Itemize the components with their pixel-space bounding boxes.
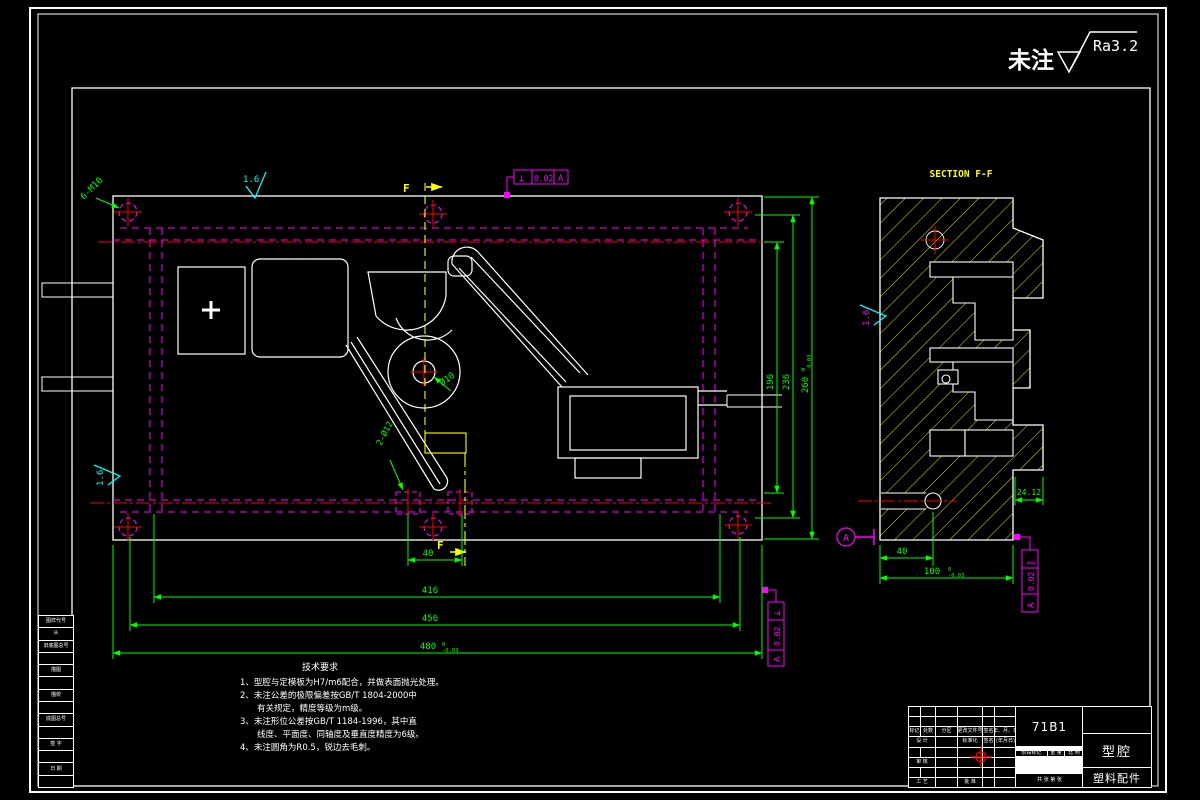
margin-field: 图样代号 (39, 616, 73, 627)
fcf-tolerance: 0.02 (1027, 572, 1036, 591)
dim-100-tol-lower: -0.03 (948, 573, 965, 579)
design-label: 设 计 (909, 737, 935, 746)
cavity-geometry (178, 247, 727, 490)
rev-header: 年、月、日 (995, 727, 1016, 736)
fcf-perpendicularity-top: ⊥ 0.02 A (504, 170, 568, 198)
note-line: 有关规定，精度等级为m级。 (240, 703, 475, 716)
plate-outline (113, 196, 762, 540)
fcf-datum: A (558, 174, 564, 184)
dim-196: 196 (766, 374, 776, 390)
fcf-datum: A (773, 656, 783, 662)
note-line: 3、未注形位公差按GB/T 1184-1996，其中直 (240, 716, 475, 729)
title-block: 标记 处数 分区 更改文件号 签名 年、月、日 设 计 标准化 (签名) (年月… (908, 706, 1150, 786)
dowel-holes-label: 2-Ø12 (374, 420, 396, 448)
roughness-value: 1.6 (96, 470, 106, 486)
drawing-canvas: 未注 Ra3.2 (0, 0, 1200, 800)
company-cell (1083, 707, 1151, 733)
margin-field-blank (39, 751, 73, 762)
title-block-middle: 71B1 阶段标记 重 量 比 例 共 张 第 张 (1015, 706, 1084, 788)
margin-field-blank (39, 677, 73, 688)
roughness-mark-left: 1.6 (94, 465, 120, 486)
dim-456: 456 (422, 614, 438, 624)
plan-dimensions (113, 197, 819, 659)
section-letter-top: F (403, 182, 410, 195)
section-title: SECTION F-F (930, 169, 993, 180)
margin-field: 描图 (39, 665, 73, 676)
drawing-sheet: 未注 Ra3.2 (0, 0, 1200, 800)
margin-field: 底图总号 (39, 714, 73, 725)
section-letter-bottom: F (437, 539, 444, 552)
bolt-holes (119, 203, 747, 536)
fcf-tolerance: 0.02 (534, 174, 553, 183)
date-label: (年月日) (995, 737, 1016, 746)
center-hole-centermark (410, 358, 438, 386)
hole-labels: 6-M10 Ø10 2-Ø12 (79, 176, 457, 490)
cooling-channels (113, 228, 762, 512)
title-block-left-grid: 标记 处数 分区 更改文件号 签名 年、月、日 设 计 标准化 (签名) (年月… (908, 706, 1017, 788)
datum-a-symbol: A (837, 528, 874, 546)
plan-view: F F 1.6 1.6 6-M10 Ø10 2-Ø12 (42, 170, 784, 666)
margin-field: 日 期 (39, 763, 73, 774)
section-view: SECTION F-F A (837, 169, 1043, 612)
margin-field: 从 (39, 628, 73, 639)
rev-header: 标记 (909, 727, 920, 736)
plan-dimension-texts: 40 416 456 480 0 -0.03 196 236 260 0 -0.… (420, 354, 813, 654)
fcf-symbol: ⊥ (773, 610, 783, 616)
technical-notes: 技术要求 1、型腔与定模板为H7/m6配合，并做表面抛光处理。 2、未注公差的极… (240, 662, 475, 755)
fcf-symbol: ⊥ (519, 174, 525, 184)
dim-40: 40 (423, 549, 434, 559)
project-name: 塑料配件 (1083, 768, 1151, 787)
general-roughness-note: 未注 Ra3.2 (1008, 32, 1138, 74)
part-name: 型腔 (1083, 734, 1151, 767)
rev-header: 处数 (921, 727, 935, 736)
drawing-number: 71B1 (1016, 707, 1083, 746)
roughness-value: 1.6 (243, 175, 259, 185)
dim-416: 416 (422, 586, 438, 596)
margin-field: 描校 (39, 690, 73, 701)
fcf-tolerance: 0.02 (773, 627, 782, 646)
margin-field-blank (39, 727, 73, 738)
rev-header: 签名 (983, 727, 994, 736)
dim-480-tol-lower: -0.03 (442, 648, 459, 654)
dim-100: 100 (924, 567, 940, 577)
title-block-right: 型腔 塑料配件 (1082, 706, 1152, 788)
notes-title: 技术要求 (302, 662, 475, 675)
roughness-value: Ra3.2 (1093, 37, 1138, 55)
weight-label: 重 量 (1048, 751, 1064, 756)
margin-field: 签 字 (39, 739, 73, 750)
margin-field-blank (39, 776, 73, 787)
dim-24-12: 24.12 (1017, 488, 1041, 497)
stage-label: 阶段标记 (1016, 751, 1047, 756)
margin-field-blank (39, 653, 73, 664)
bolt-holes-label: 6-M10 (79, 176, 105, 202)
dim-260: 260 (801, 377, 811, 393)
note-line: 1、型腔与定模板为H7/m6配合，并做表面抛光处理。 (240, 677, 475, 690)
fcf-parallelism-section: ∥ 0.02 A (1014, 534, 1038, 612)
centerlines (90, 198, 772, 541)
check-label: 审 核 (909, 758, 935, 767)
fcf-datum: A (1027, 602, 1037, 608)
dim-40-section: 40 (897, 547, 908, 557)
unmarked-label: 未注 (1008, 47, 1054, 74)
fcf-symbol: ∥ (1027, 561, 1037, 566)
approve-label: 批 准 (958, 778, 982, 787)
scale-label: 比 例 (1065, 751, 1083, 756)
rev-header: 分区 (936, 727, 957, 736)
note-line: 4、未注圆角为R0.5，锐边去毛刺。 (240, 742, 475, 755)
dim-480: 480 (420, 642, 436, 652)
sheets-label: 共 张 第 张 (1016, 774, 1083, 787)
margin-field-blank (39, 702, 73, 713)
process-label: 工 艺 (909, 778, 935, 787)
datum-letter: A (843, 533, 849, 544)
margin-field-strip: 图样代号 从 旧底图总号 描图 描校 底图总号 签 字 日 期 (38, 615, 74, 788)
margin-field: 旧底图总号 (39, 641, 73, 652)
center-hole-label: Ø10 (437, 370, 457, 388)
note-line: 2、未注公差的极限偏差按GB/T 1804-2000中 (240, 690, 475, 703)
dim-236: 236 (782, 374, 792, 390)
note-line: 线度、平面度、同轴度及垂直度精度为6级。 (240, 729, 475, 742)
dim-260-tol-lower: -0.03 (807, 354, 813, 371)
clamp-slots (42, 283, 782, 407)
fcf-perpendicularity-right: ⊥ 0.02 A (762, 587, 784, 666)
roughness-mark-top: 1.6 (243, 172, 266, 198)
rev-header: 更改文件号 (958, 727, 982, 736)
roughness-value: 1.6 (862, 310, 872, 326)
projection-symbol-icon (970, 746, 992, 768)
